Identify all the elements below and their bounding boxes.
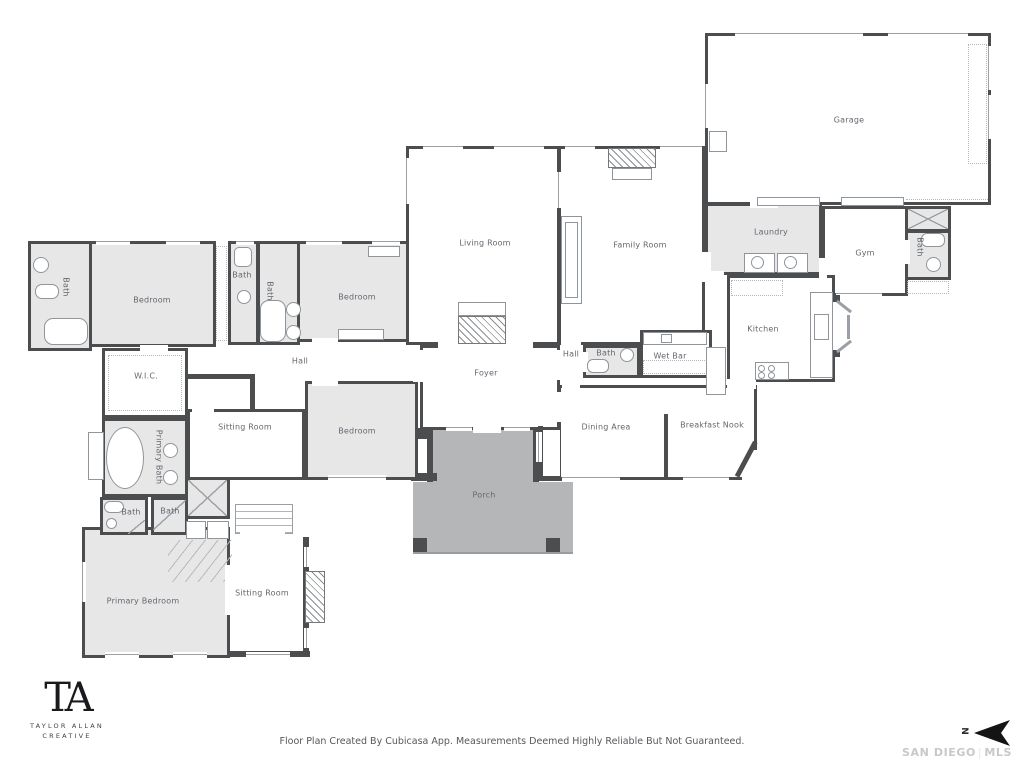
door-opening xyxy=(660,388,672,414)
brand-monogram: TA xyxy=(22,676,112,720)
door-opening xyxy=(192,406,214,414)
toilet-fixture xyxy=(587,359,609,373)
toilet-fixture xyxy=(35,284,59,299)
pantry-cabinet xyxy=(706,347,726,395)
door-opening xyxy=(140,345,168,352)
closet xyxy=(207,521,229,539)
room-label-wic: W.I.C. xyxy=(134,372,158,381)
door-opening xyxy=(819,258,827,288)
sink-fixture xyxy=(926,257,941,272)
room-label-bath-west: Bath xyxy=(62,277,71,296)
fireplace-hearth xyxy=(458,302,506,316)
window xyxy=(96,239,130,245)
window xyxy=(703,84,709,128)
wall-segment xyxy=(540,476,560,480)
door-opening xyxy=(225,565,235,615)
room-label-bath-primary-shower: Bath xyxy=(160,507,179,516)
floor-plan: Bath Bedroom Bath Bath Bedroom Living Ro… xyxy=(0,0,1024,768)
room-dining-area xyxy=(558,385,667,480)
bay-window-cut xyxy=(832,301,840,351)
room-label-primary-bath: Primary Bath xyxy=(155,430,164,484)
mls-watermark-left: SAN DIEGO xyxy=(902,746,976,759)
window xyxy=(304,628,310,648)
room-label-primary-bedroom: Primary Bedroom xyxy=(107,597,180,606)
stove-burner xyxy=(768,372,775,379)
cabinet xyxy=(643,360,707,374)
window xyxy=(836,291,882,297)
door-opening xyxy=(902,240,910,264)
room-label-laundry: Laundry xyxy=(754,228,788,237)
door-opening xyxy=(706,271,724,279)
room-label-garage: Garage xyxy=(834,116,865,125)
door-opening xyxy=(562,383,580,391)
closet xyxy=(907,281,949,294)
window xyxy=(565,144,595,150)
kitchen-counter xyxy=(731,280,783,296)
closet-x-box xyxy=(905,206,951,232)
dryer-door xyxy=(784,256,797,269)
sink-fixture xyxy=(814,314,829,340)
dresser xyxy=(368,246,400,257)
closet xyxy=(186,521,206,539)
room-label-family-room: Family Room xyxy=(613,241,666,250)
window xyxy=(166,239,200,245)
window xyxy=(328,475,386,481)
room-label-bath-gym: Bath xyxy=(916,237,925,256)
room-sitting-upper xyxy=(187,409,305,480)
sink-fixture xyxy=(163,443,178,458)
angled-wall-lines xyxy=(168,540,232,582)
window xyxy=(536,432,542,462)
room-label-kitchen: Kitchen xyxy=(747,325,778,334)
wall-segment xyxy=(187,374,255,379)
porch-post xyxy=(546,538,560,552)
window xyxy=(494,144,544,150)
room-label-bedroom-nw: Bedroom xyxy=(133,296,171,305)
window xyxy=(304,547,310,567)
porch-post xyxy=(413,538,427,552)
compass-north-label: N xyxy=(959,727,969,735)
window xyxy=(246,652,290,658)
window xyxy=(556,172,562,208)
door-opening xyxy=(240,528,285,536)
fireplace-hatch xyxy=(305,571,325,623)
window xyxy=(236,239,254,245)
room-label-living-room: Living Room xyxy=(459,239,510,248)
dresser xyxy=(338,329,384,340)
window xyxy=(372,239,400,245)
storage-area xyxy=(968,44,987,164)
room-label-hall-west: Hall xyxy=(292,357,308,366)
fireplace-hatch xyxy=(608,148,656,168)
bathtub-fixture xyxy=(260,300,286,342)
room-label-sitting-upper: Sitting Room xyxy=(218,423,272,432)
door-opening xyxy=(86,354,94,380)
stove-burner xyxy=(768,365,775,372)
sink-fixture xyxy=(286,302,301,317)
window xyxy=(504,425,530,431)
sink-fixture xyxy=(163,470,178,485)
room-label-bath-small: Bath xyxy=(232,271,251,280)
room-label-bath-hall: Bath xyxy=(596,349,615,358)
window xyxy=(404,158,410,204)
shower-corner xyxy=(128,520,145,534)
room-label-breakfast-nook: Breakfast Nook xyxy=(680,421,744,430)
wet-bar-counter xyxy=(643,332,707,345)
brand-logo: TA TAYLOR ALLAN CREATIVE xyxy=(22,676,112,740)
room-label-bedroom-mid: Bedroom xyxy=(338,427,376,436)
window xyxy=(306,239,342,245)
door-opening xyxy=(413,350,425,382)
door-opening xyxy=(312,378,338,386)
bathtub-fixture xyxy=(106,427,144,489)
washer-door xyxy=(751,256,764,269)
window xyxy=(735,31,863,37)
room-label-dining-area: Dining Area xyxy=(582,423,631,432)
sink-fixture xyxy=(33,257,49,273)
room-label-hall-east: Hall xyxy=(563,350,579,359)
fireplace-hatch xyxy=(458,316,506,344)
sink-fixture xyxy=(106,518,117,529)
bay-window xyxy=(847,315,850,339)
door-opening xyxy=(727,379,756,389)
sink-fixture xyxy=(286,325,301,340)
closet-x-box xyxy=(185,477,230,519)
brand-name-line1: TAYLOR ALLAN xyxy=(22,722,112,730)
toilet-fixture xyxy=(234,247,252,267)
room-foyer xyxy=(420,345,560,430)
room-bedroom-nw xyxy=(89,241,216,347)
mls-watermark-right: MLS xyxy=(984,746,1012,759)
window xyxy=(562,475,620,481)
door-opening xyxy=(473,425,501,433)
utility-box xyxy=(709,131,727,152)
window xyxy=(683,475,729,481)
fireplace-hearth xyxy=(612,168,652,180)
room-label-foyer: Foyer xyxy=(474,369,497,378)
room-label-wet-bar: Wet Bar xyxy=(653,352,686,361)
window xyxy=(105,652,139,658)
window-bay xyxy=(88,432,104,480)
window xyxy=(173,652,207,658)
closet-shelving xyxy=(108,355,182,411)
door-opening xyxy=(556,392,565,422)
sink-fixture xyxy=(237,290,251,304)
sink-fixture xyxy=(661,334,672,343)
wall-segment xyxy=(250,374,255,410)
window xyxy=(660,144,702,150)
overhang-line xyxy=(906,199,988,201)
window xyxy=(888,31,968,37)
room-label-porch: Porch xyxy=(472,491,495,500)
room-label-gym: Gym xyxy=(855,249,874,258)
compass: N xyxy=(958,714,1014,750)
stove-burner xyxy=(758,365,765,372)
room-label-bedroom-n: Bedroom xyxy=(338,293,376,302)
garage-step xyxy=(757,197,820,206)
compass-arrow-icon xyxy=(974,718,1010,748)
closet xyxy=(216,246,227,341)
room-label-bath-primary-wc: Bath xyxy=(121,508,140,517)
disclaimer-text: Floor Plan Created By Cubicasa App. Meas… xyxy=(0,736,1024,747)
stove-burner xyxy=(758,372,765,379)
garage-step xyxy=(841,197,904,206)
window xyxy=(80,562,86,602)
mls-watermark: SAN DIEGO|MLS xyxy=(902,746,1012,759)
room-label-bath-jack-jill: Bath xyxy=(266,281,275,300)
door-opening xyxy=(312,338,338,346)
window xyxy=(423,144,463,150)
room-porch-upper xyxy=(433,428,533,484)
room-dining-extension xyxy=(540,430,560,477)
room-label-sitting-lower: Sitting Room xyxy=(235,589,289,598)
toilet-fixture xyxy=(921,233,945,247)
bathtub-fixture xyxy=(44,318,88,345)
window xyxy=(446,425,472,431)
sink-fixture xyxy=(620,348,634,362)
sofa-cushions xyxy=(565,222,578,298)
